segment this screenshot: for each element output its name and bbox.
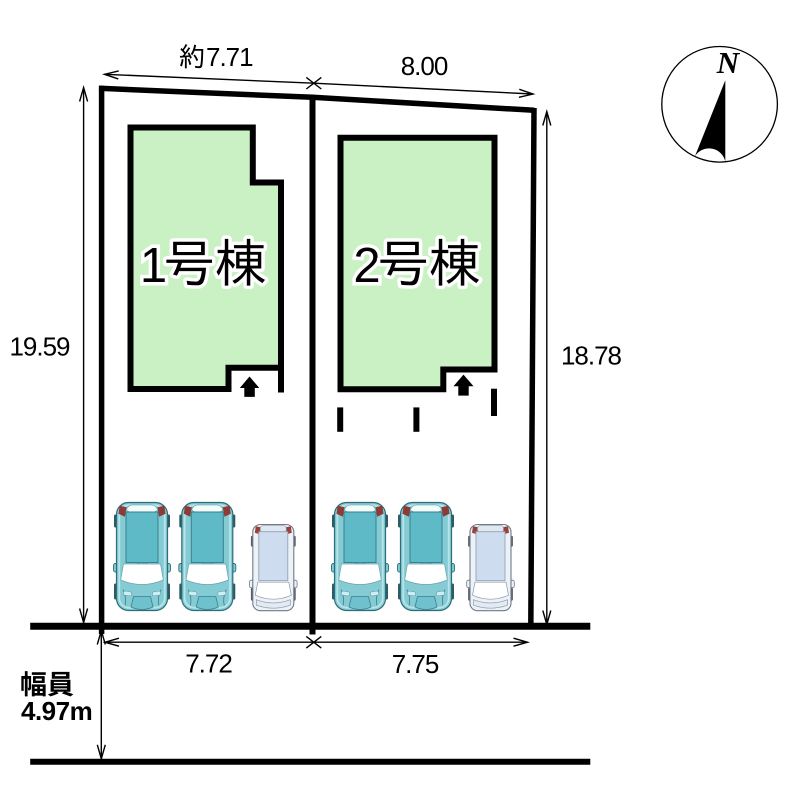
svg-text:2: 2 <box>353 239 380 293</box>
svg-text:8.00: 8.00 <box>401 51 448 81</box>
svg-text:4.97m: 4.97m <box>21 696 92 726</box>
svg-text:7.71: 7.71 <box>206 42 253 72</box>
svg-text:7.72: 7.72 <box>185 648 232 678</box>
svg-text:N: N <box>716 45 741 80</box>
svg-text:18.78: 18.78 <box>561 341 622 371</box>
svg-text:19.59: 19.59 <box>9 331 70 361</box>
svg-text:1: 1 <box>140 239 167 293</box>
svg-text:7.75: 7.75 <box>392 649 439 679</box>
